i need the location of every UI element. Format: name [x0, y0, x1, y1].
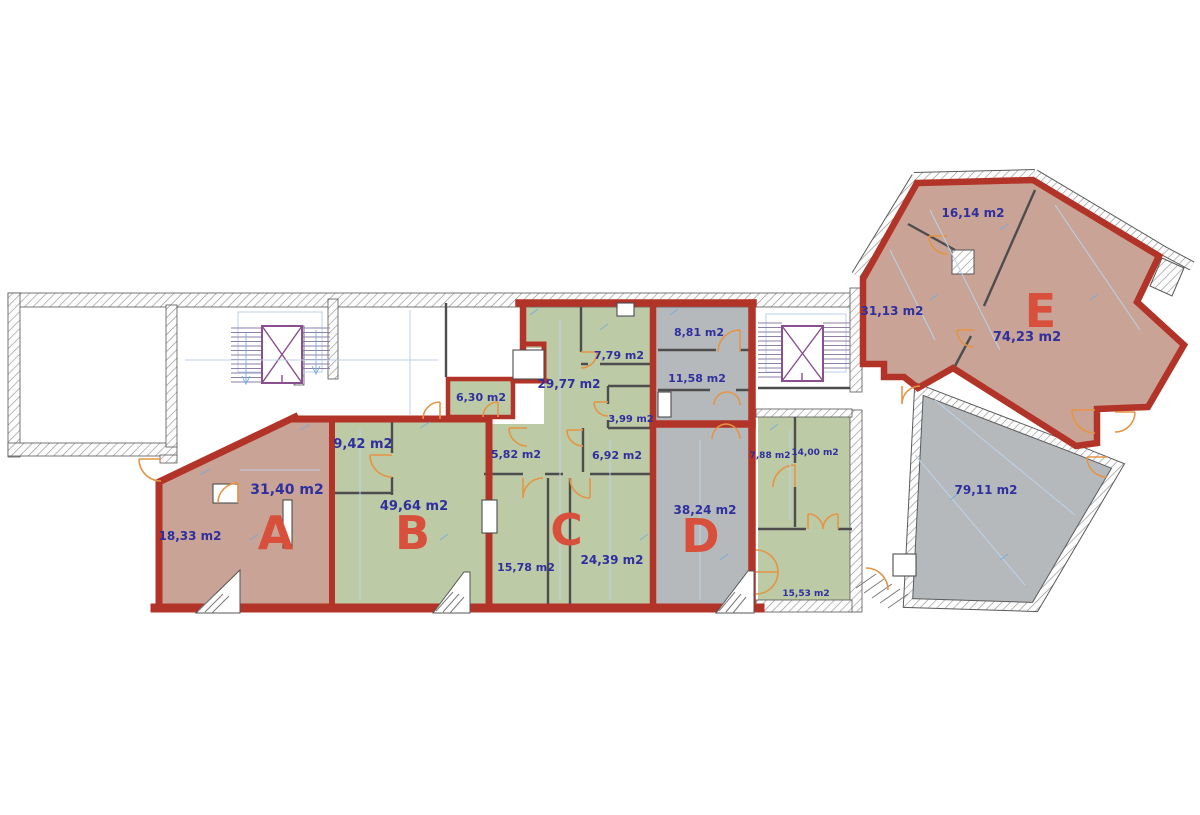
floor-plan-drawing: 31,40 m2 18,33 m2 9,42 m2 49,64 m2 6,30 … — [0, 0, 1200, 815]
room-area-label: 6,92 m2 — [592, 449, 642, 462]
room-area-label: 9,42 m2 — [333, 437, 392, 452]
room-area-label: 6,30 m2 — [456, 391, 506, 404]
room-area-label: 79,11 m2 — [955, 483, 1018, 497]
unit-letter-e: E — [1025, 284, 1057, 338]
unit-letter-a: A — [258, 506, 295, 560]
wall-stair1-right — [328, 299, 338, 379]
wall-stub — [160, 455, 177, 463]
unit-c-floor-upper — [523, 303, 655, 348]
room-area-label: 7,79 m2 — [594, 349, 644, 362]
room-area-label: 5,82 m2 — [491, 448, 541, 461]
stair-direction-arrow — [242, 332, 250, 384]
wall-rooms-top — [756, 409, 852, 417]
wall-left — [8, 293, 20, 457]
e-shaft — [952, 250, 974, 274]
room-area-label: 8,81 m2 — [674, 326, 724, 339]
wall-room-right — [166, 305, 177, 447]
wall-rooms-right — [850, 410, 862, 612]
door-swing — [139, 459, 161, 481]
stairwell-right — [758, 314, 850, 388]
stairwell-left — [231, 312, 330, 384]
room-area-label: 29,77 m2 — [538, 377, 601, 391]
unit-letter-d: D — [681, 509, 720, 563]
unit-letter-c: C — [550, 505, 583, 556]
room-area-label: 15,78 m2 — [497, 561, 555, 574]
exterior-stair-se — [856, 574, 908, 608]
room-area-label: 7,88 m2 — [750, 451, 791, 461]
unit-d-duct — [658, 392, 671, 417]
door-swing — [1115, 412, 1135, 432]
room-area-label: 14,00 m2 — [791, 448, 838, 458]
room-area-label: 24,39 m2 — [581, 553, 644, 567]
wall-room-bottom — [8, 443, 177, 456]
room-area-label: 31,13 m2 — [861, 304, 924, 318]
common-rooms-floor — [758, 413, 852, 605]
room-area-label: 15,53 m2 — [782, 589, 829, 599]
room-area-label: 31,40 m2 — [250, 482, 324, 498]
room-area-label: 18,33 m2 — [159, 529, 222, 543]
floor-plan-page: 31,40 m2 18,33 m2 9,42 m2 49,64 m2 6,30 … — [0, 0, 1200, 815]
room-area-label: 3,99 m2 — [608, 414, 654, 425]
unit-a-floor — [159, 417, 332, 605]
wall-rooms-bottom — [756, 600, 852, 612]
corridor-pocket — [513, 350, 544, 379]
unit-c-top-shaft — [617, 303, 634, 316]
room-area-label: 16,14 m2 — [942, 206, 1005, 220]
room-area-label: 11,58 m2 — [668, 372, 726, 385]
unit-letter-b: B — [395, 506, 431, 560]
bc-wall-shaft — [482, 500, 497, 533]
room-79-notch — [893, 554, 916, 576]
